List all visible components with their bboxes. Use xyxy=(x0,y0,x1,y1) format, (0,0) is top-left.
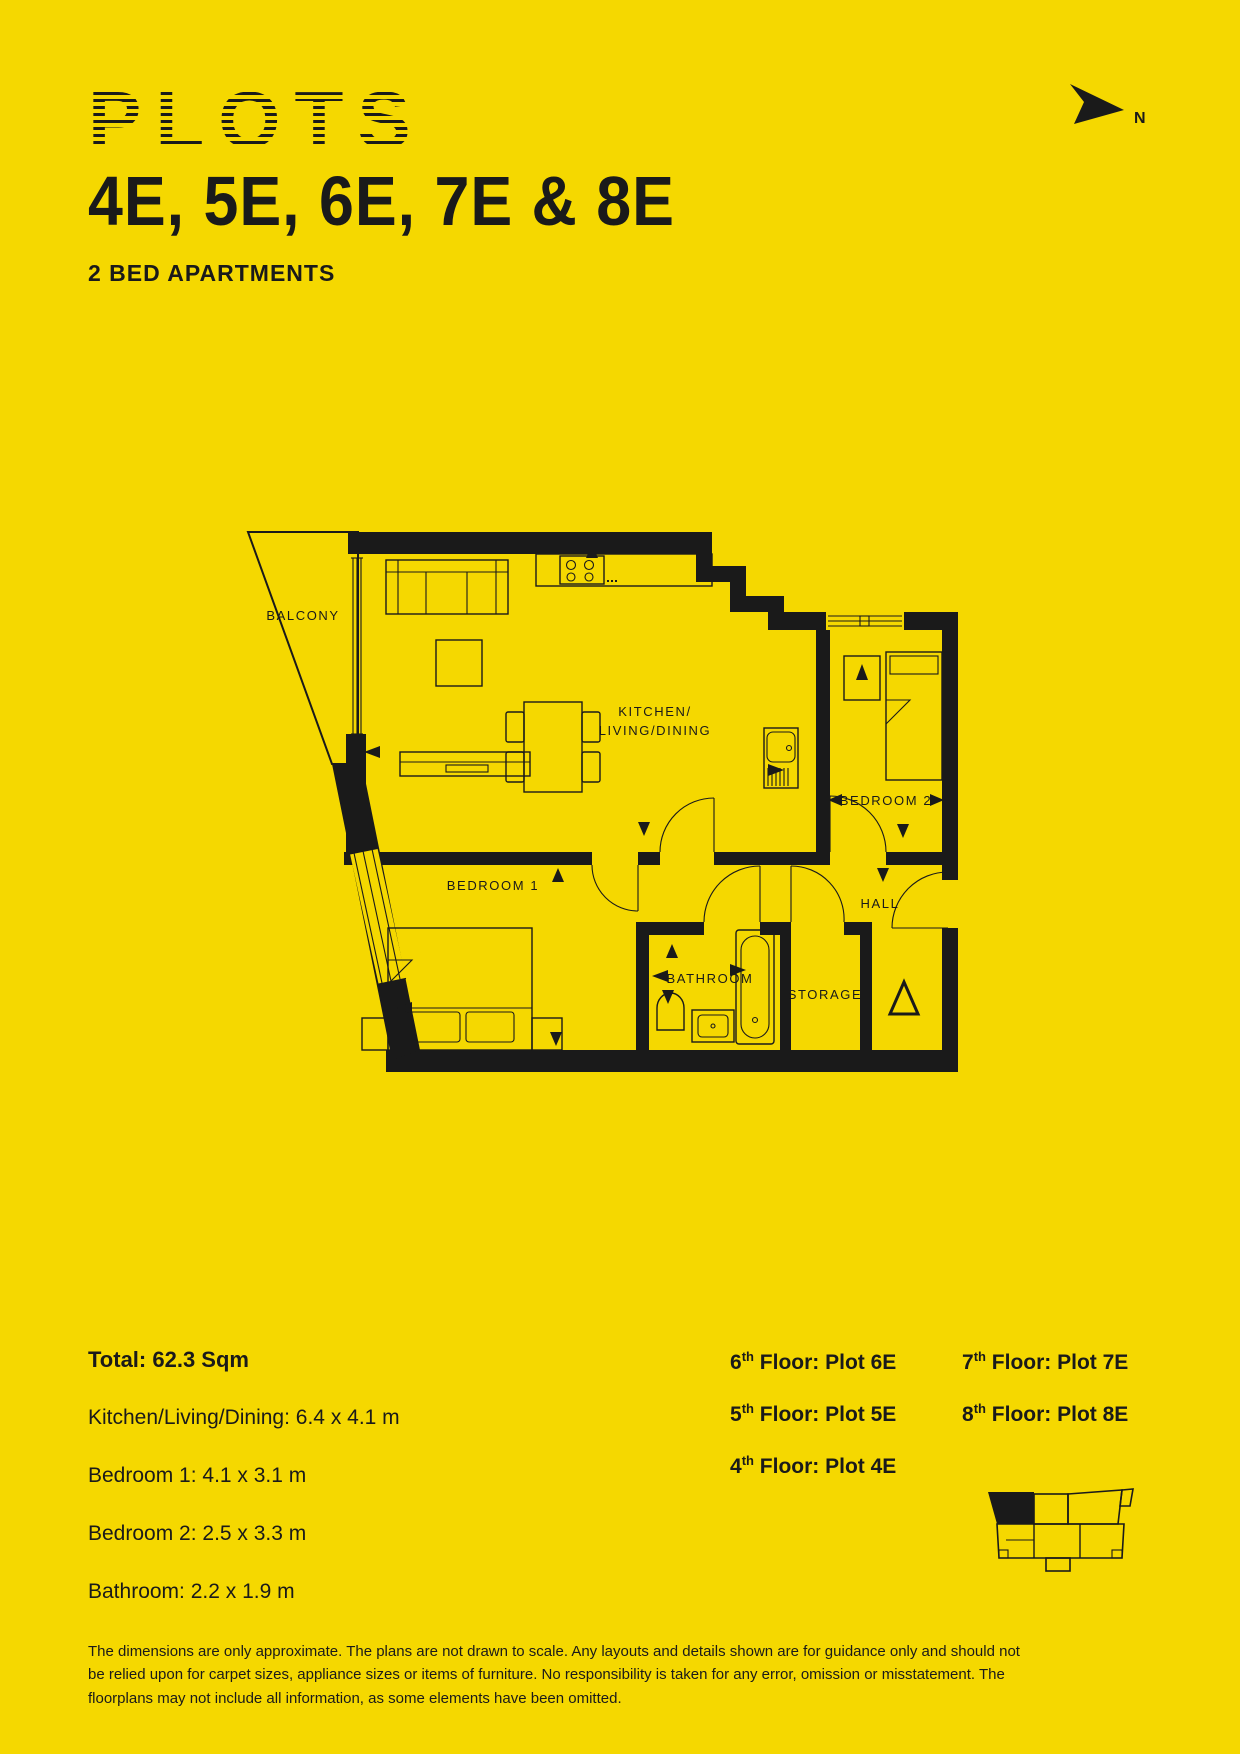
door-living xyxy=(660,798,714,852)
floor-plot-8e: 8th Floor: Plot 8E xyxy=(962,1396,1128,1427)
riser-triangle-symbol xyxy=(890,982,918,1014)
floor-plot-6e: 6th Floor: Plot 6E xyxy=(730,1344,896,1375)
door-bedroom1 xyxy=(592,865,638,911)
floor-plot-4e: 4th Floor: Plot 4E xyxy=(730,1448,896,1479)
bathtub xyxy=(736,930,774,1044)
kitchen-label-line1: KITCHEN/ xyxy=(618,704,691,719)
bedroom2-bedside-unit xyxy=(844,656,880,700)
floor-plot-7e: 7th Floor: Plot 7E xyxy=(962,1344,1128,1375)
sideboard xyxy=(400,752,530,776)
coffee-table xyxy=(436,640,482,686)
north-compass: N xyxy=(1062,78,1172,144)
balcony: BALCONY xyxy=(248,532,358,764)
plot-numbers-heading: 4E, 5E, 6E, 7E & 8E xyxy=(88,161,675,241)
kitchen-sink xyxy=(764,728,798,788)
storage-label: STORAGE xyxy=(788,987,863,1002)
kitchen-label-line2: LIVING/DINING xyxy=(599,723,712,738)
bedroom2-bed xyxy=(886,652,942,780)
stat-bedroom1: Bedroom 1: 4.1 x 3.1 m xyxy=(88,1464,400,1488)
balcony-label: BALCONY xyxy=(266,608,339,623)
bedroom1-label: BEDROOM 1 xyxy=(447,878,539,893)
floor-plot-5e: 5th Floor: Plot 5E xyxy=(730,1396,896,1427)
bedroom2-label: BEDROOM 2 xyxy=(840,793,932,808)
door-storage xyxy=(791,866,844,922)
floors-column-2: 7th Floor: Plot 7E 8th Floor: Plot 8E xyxy=(962,1344,1128,1448)
plots-striped-title: PLOTS xyxy=(88,78,425,162)
brochure-page: PLOTS 4E, 5E, 6E, 7E & 8E 2 BED APARTMEN… xyxy=(0,0,1240,1754)
north-arrow-icon xyxy=(1062,78,1132,134)
apartment-type-subtitle: 2 BED APARTMENTS xyxy=(88,260,687,287)
stat-bathroom: Bathroom: 2.2 x 1.9 m xyxy=(88,1580,400,1604)
kitchen-counter xyxy=(536,554,712,586)
stat-bedroom2: Bedroom 2: 2.5 x 3.3 m xyxy=(88,1522,400,1546)
sofa xyxy=(386,560,508,614)
door-bathroom xyxy=(704,866,760,922)
bedroom2-window xyxy=(828,616,902,626)
door-entrance xyxy=(892,872,948,928)
total-area: Total: 62.3 Sqm xyxy=(88,1348,400,1372)
disclaimer-text: The dimensions are only approximate. The… xyxy=(88,1640,1028,1710)
site-plan-icon xyxy=(984,1478,1136,1580)
basin xyxy=(692,1010,734,1042)
dining-table xyxy=(506,702,600,792)
living-room-window xyxy=(351,558,363,734)
north-label: N xyxy=(1134,110,1146,128)
bedroom1-window xyxy=(350,848,406,984)
page-title: PLOTS xyxy=(88,78,425,162)
toilet xyxy=(657,993,684,1030)
stat-kitchen: Kitchen/Living/Dining: 6.4 x 4.1 m xyxy=(88,1406,400,1430)
floors-column-1: 6th Floor: Plot 6E 5th Floor: Plot 5E 4t… xyxy=(730,1344,896,1500)
header: PLOTS 4E, 5E, 6E, 7E & 8E 2 BED APARTMEN… xyxy=(88,78,687,287)
floorplan: BALCONY xyxy=(240,524,970,1084)
dimensions-list: Total: 62.3 Sqm Kitchen/Living/Dining: 6… xyxy=(88,1348,400,1638)
hall-label: HALL xyxy=(861,896,900,911)
bathroom-label: BATHROOM xyxy=(667,971,754,986)
